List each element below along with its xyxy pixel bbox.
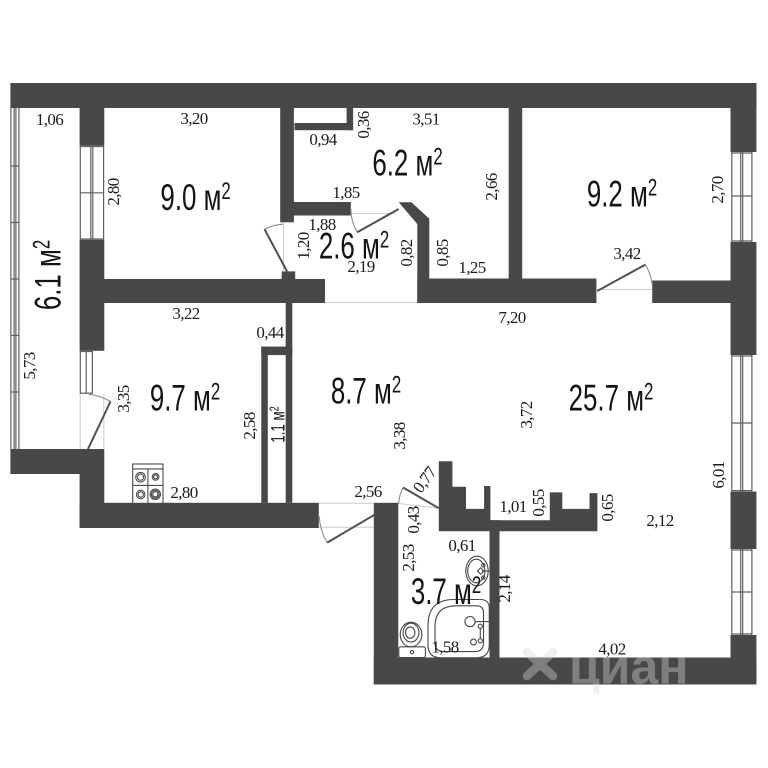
svg-text:2,80: 2,80 [104, 178, 123, 205]
svg-text:3,35: 3,35 [114, 385, 133, 412]
svg-text:1,20: 1,20 [294, 232, 313, 259]
svg-text:0,36: 0,36 [354, 111, 373, 138]
svg-text:9.7 м2: 9.7 м2 [150, 377, 220, 419]
svg-text:3,72: 3,72 [517, 401, 536, 428]
svg-text:6,01: 6,01 [709, 461, 728, 488]
svg-text:5,73: 5,73 [20, 352, 39, 379]
svg-text:9.0 м2: 9.0 м2 [160, 176, 230, 218]
svg-text:2,14: 2,14 [495, 574, 514, 602]
svg-text:0,44: 0,44 [256, 323, 284, 342]
svg-text:1,88: 1,88 [308, 215, 335, 234]
svg-text:2,66: 2,66 [482, 173, 501, 200]
svg-text:6.2 м2: 6.2 м2 [372, 142, 442, 184]
svg-text:0,43: 0,43 [404, 506, 423, 533]
svg-text:1,01: 1,01 [499, 497, 526, 516]
svg-text:2,56: 2,56 [354, 482, 381, 501]
svg-text:3,42: 3,42 [613, 244, 640, 263]
svg-text:1.1 м2: 1.1 м2 [268, 406, 289, 442]
svg-text:3,51: 3,51 [412, 110, 439, 129]
svg-text:2,12: 2,12 [646, 511, 673, 530]
svg-text:8.7 м2: 8.7 м2 [331, 370, 401, 412]
svg-text:циан: циан [569, 639, 688, 695]
svg-text:0,65: 0,65 [598, 494, 617, 521]
svg-text:6.1 м2: 6.1 м2 [27, 240, 69, 310]
svg-text:0,55: 0,55 [529, 489, 548, 516]
svg-text:2,53: 2,53 [399, 544, 418, 571]
svg-text:1,85: 1,85 [332, 183, 359, 202]
svg-text:7,20: 7,20 [498, 308, 525, 327]
svg-text:2,70: 2,70 [708, 176, 727, 203]
svg-text:3,22: 3,22 [172, 304, 199, 323]
svg-text:0,61: 0,61 [448, 536, 475, 555]
svg-text:0,85: 0,85 [433, 239, 452, 266]
svg-text:25.7 м2: 25.7 м2 [569, 377, 654, 419]
svg-text:2,58: 2,58 [240, 412, 259, 439]
svg-text:1,58: 1,58 [431, 638, 458, 657]
svg-text:2,80: 2,80 [170, 483, 197, 502]
svg-text:3,20: 3,20 [180, 109, 207, 128]
svg-text:3.7 м2: 3.7 м2 [411, 570, 481, 612]
svg-text:0,94: 0,94 [309, 130, 337, 149]
svg-text:3,38: 3,38 [390, 422, 409, 449]
svg-text:0,82: 0,82 [397, 239, 416, 266]
svg-text:1,06: 1,06 [36, 110, 63, 129]
svg-text:2,19: 2,19 [347, 257, 374, 276]
svg-text:9.2 м2: 9.2 м2 [587, 173, 657, 215]
svg-text:1,25: 1,25 [458, 258, 485, 277]
